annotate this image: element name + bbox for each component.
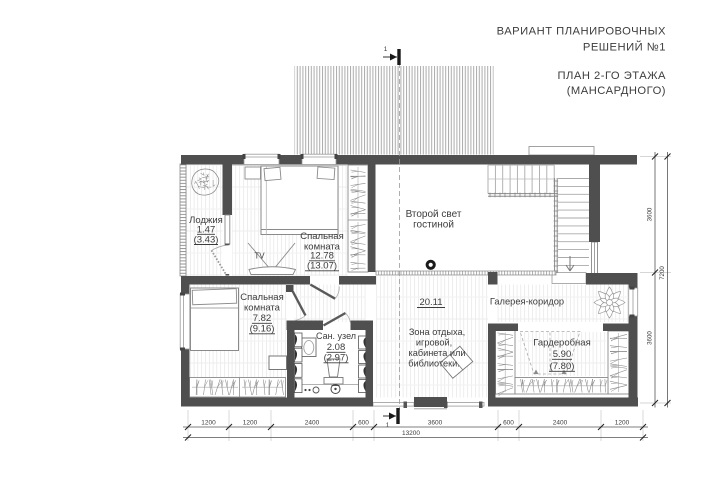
svg-text:2.08: 2.08 (327, 342, 346, 353)
svg-text:7200: 7200 (659, 266, 666, 280)
svg-text:кабинета или: кабинета или (409, 348, 466, 358)
svg-text:(9.16): (9.16) (250, 324, 275, 335)
svg-text:Галерея-коридор: Галерея-коридор (490, 297, 564, 307)
svg-text:(13.07): (13.07) (307, 261, 337, 272)
svg-text:7.82: 7.82 (253, 313, 272, 324)
svg-text:Спальная: Спальная (240, 292, 283, 303)
svg-text:1200: 1200 (201, 420, 216, 427)
svg-text:комната: комната (244, 303, 281, 314)
svg-text:(7.80): (7.80) (550, 361, 575, 372)
svg-text:ВАРИАНТ ПЛАНИРОВОЧНЫХ: ВАРИАНТ ПЛАНИРОВОЧНЫХ (497, 26, 666, 38)
svg-text:1200: 1200 (243, 420, 258, 427)
svg-text:13200: 13200 (402, 430, 420, 437)
svg-text:гостиной: гостиной (413, 220, 454, 231)
svg-text:TV: TV (254, 252, 265, 261)
svg-text:(3.43): (3.43) (194, 235, 219, 246)
svg-text:3600: 3600 (647, 331, 654, 345)
svg-text:1: 1 (386, 422, 390, 429)
svg-text:ПЛАН 2-ГО ЭТАЖА: ПЛАН 2-ГО ЭТАЖА (558, 70, 667, 82)
svg-text:Зона отдыха,: Зона отдыха, (409, 327, 465, 337)
svg-text:20.11: 20.11 (419, 297, 442, 308)
svg-text:Спальная: Спальная (300, 231, 343, 242)
svg-text:Второй свет: Второй свет (406, 209, 462, 220)
svg-text:3600: 3600 (647, 207, 654, 221)
svg-text:библиотеки.: библиотеки. (408, 359, 460, 369)
svg-text:3600: 3600 (428, 420, 443, 427)
svg-text:2400: 2400 (553, 420, 568, 427)
svg-text:игровой,: игровой, (416, 338, 452, 348)
svg-text:(2.97): (2.97) (324, 353, 349, 364)
svg-text:600: 600 (358, 420, 369, 427)
svg-text:1: 1 (384, 46, 388, 53)
svg-text:2400: 2400 (305, 420, 320, 427)
svg-text:5.90: 5.90 (553, 349, 572, 360)
svg-text:(МАНСАРДНОГО): (МАНСАРДНОГО) (567, 85, 666, 97)
svg-text:РЕШЕНИЙ №1: РЕШЕНИЙ №1 (583, 41, 666, 54)
svg-text:Сан. узел: Сан. узел (316, 331, 356, 341)
svg-text:1200: 1200 (615, 420, 630, 427)
svg-text:Гардеробная: Гардеробная (533, 338, 590, 349)
svg-text:600: 600 (503, 420, 514, 427)
